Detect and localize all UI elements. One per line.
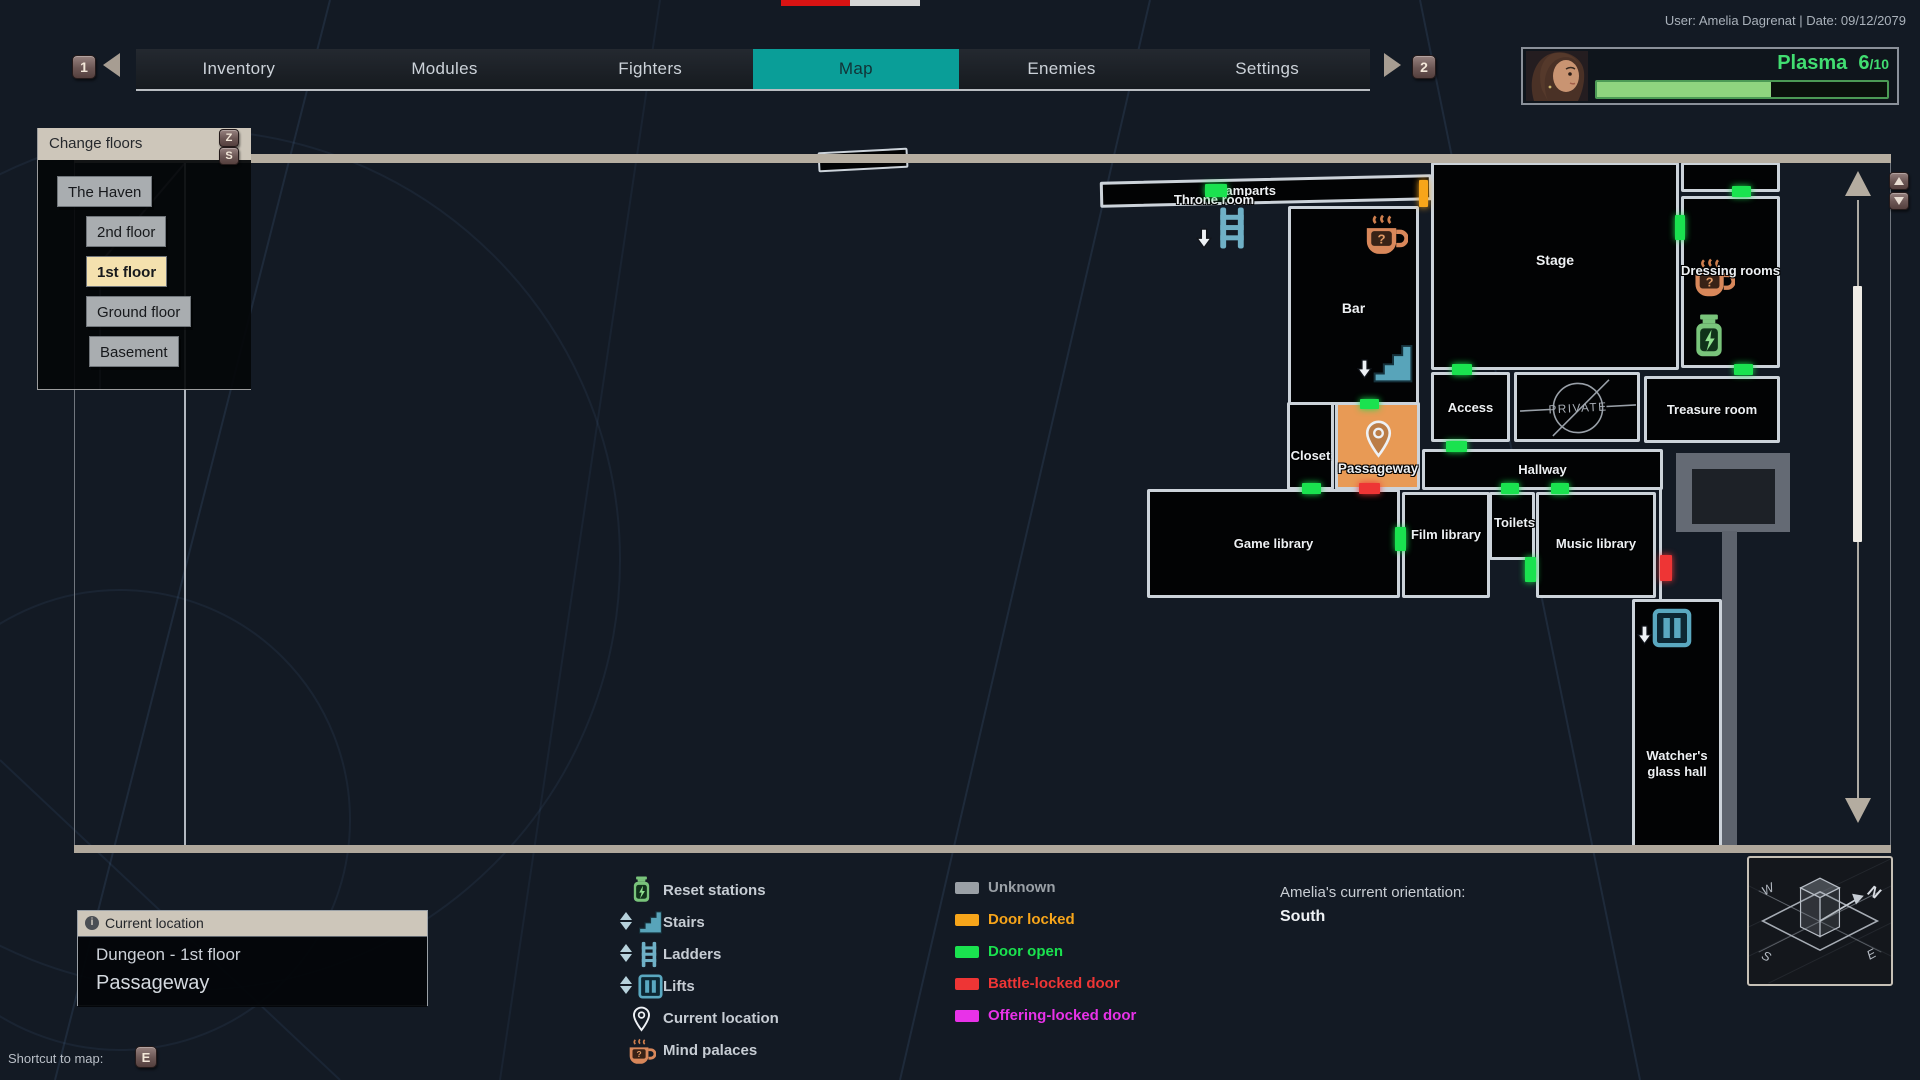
tab-inventory[interactable]: Inventory	[136, 49, 342, 89]
room-label-dressing-rooms: Dressing rooms	[1681, 263, 1780, 279]
current-location-pin-icon	[1364, 420, 1393, 458]
floor-2nd[interactable]: 2nd floor	[86, 216, 166, 247]
floor-down-key[interactable]: S	[219, 147, 239, 165]
floor-1st[interactable]: 1st floor	[86, 256, 167, 287]
plasma-bar	[1595, 80, 1889, 99]
orientation-value: South	[1280, 908, 1325, 926]
scroll-down-arrow[interactable]	[1845, 798, 1871, 823]
door-open	[1734, 364, 1753, 375]
current-location-title: Current location	[78, 911, 427, 936]
door-swatch-battle	[955, 978, 979, 990]
info-icon	[85, 916, 99, 930]
prev-tab-arrow-icon[interactable]	[103, 53, 120, 77]
stairs-icon	[1372, 342, 1414, 384]
room-label-hallway: Hallway	[1422, 462, 1663, 478]
door-battle	[1660, 555, 1672, 581]
door-open	[1551, 483, 1569, 494]
room-label-game-library: Game library	[1147, 536, 1400, 552]
room-label-bar: Bar	[1288, 300, 1419, 318]
reset-stations-icon	[630, 876, 653, 903]
room-label-music-library: Music library	[1536, 536, 1656, 552]
player-panel: Plasma 6/10	[1521, 47, 1899, 105]
tab-enemies[interactable]: Enemies	[959, 49, 1165, 89]
lift-icon	[638, 974, 663, 999]
top-progress-white	[850, 0, 920, 6]
ladder-icon	[1212, 206, 1252, 250]
plasma-fill	[1597, 82, 1771, 97]
door-open	[1501, 483, 1519, 494]
legend-reset-stations: Reset stations	[663, 876, 766, 906]
svg-text:?: ?	[1377, 232, 1385, 247]
door-open	[1732, 186, 1751, 197]
plasma-label: Plasma	[1777, 52, 1847, 74]
ladder-icon	[640, 941, 658, 968]
room-label-passageway: Passageway	[1318, 461, 1438, 478]
tab-label: Map	[839, 59, 873, 79]
room-label-treasure: Treasure room	[1644, 402, 1780, 418]
shortcut-key[interactable]: E	[135, 1046, 157, 1068]
tab-label: Modules	[411, 59, 477, 79]
legend-door-open: Door open	[988, 940, 1063, 964]
svg-text:?: ?	[636, 1049, 641, 1059]
tab-label: Inventory	[203, 59, 276, 79]
legend-battle-locked: Battle-locked door	[988, 972, 1120, 996]
private-stamp: PRIVATE	[1517, 376, 1640, 440]
door-swatch-locked	[955, 914, 979, 926]
floor-basement[interactable]: Basement	[89, 336, 179, 367]
legend-mind-palaces: Mind palaces	[663, 1036, 757, 1066]
door-swatch-unknown	[955, 882, 979, 894]
compass-w: W	[1759, 880, 1777, 898]
down-arrow-icon	[1357, 359, 1372, 379]
tab-label: Settings	[1235, 59, 1299, 79]
door-swatch-open	[955, 946, 979, 958]
scrollbar-thumb[interactable]	[1853, 286, 1862, 542]
legend-lifts: Lifts	[663, 972, 695, 1002]
lift-icon	[1652, 608, 1692, 648]
door-swatch-offering	[955, 1010, 979, 1022]
door-open	[1360, 399, 1379, 409]
door-open	[1302, 483, 1321, 494]
door-open	[1446, 441, 1467, 452]
room-column-top	[1681, 162, 1780, 192]
down-arrow-icon	[1196, 228, 1212, 249]
stairs-icon	[638, 910, 663, 934]
mind-palace-icon: ?	[624, 1038, 656, 1068]
scroll-down-key[interactable]	[1889, 192, 1909, 210]
next-tab-key[interactable]: 2	[1412, 55, 1436, 79]
plasma-value: 6	[1858, 52, 1869, 74]
legend-stairs: Stairs	[663, 908, 705, 938]
room-label-toilets: Toilets	[1494, 515, 1554, 531]
avatar	[1525, 51, 1589, 101]
tab-modules[interactable]: Modules	[342, 49, 548, 89]
room-label-stage: Stage	[1431, 252, 1679, 270]
door-open	[1395, 527, 1406, 551]
tab-bar: Inventory Modules Fighters Map Enemies S…	[136, 49, 1370, 91]
tab-map[interactable]: Map	[753, 49, 959, 89]
scroll-up-key[interactable]	[1889, 172, 1909, 190]
plasma-counter: Plasma 6/10	[1777, 52, 1889, 75]
structure-block-inner	[1692, 469, 1775, 524]
scroll-up-arrow[interactable]	[1845, 171, 1871, 196]
legend-offering-locked: Offering-locked door	[988, 1004, 1136, 1028]
door-open	[1452, 364, 1472, 375]
compass-e: E	[1864, 946, 1879, 963]
change-floors-panel: Change floors Z S The Haven 2nd floor 1s…	[37, 128, 251, 390]
current-location-room: Passageway	[96, 972, 209, 995]
up-down-arrows-icon	[620, 912, 632, 930]
orientation-label: Amelia's current orientation:	[1280, 884, 1465, 901]
door-locked	[1419, 180, 1428, 207]
door-open	[1525, 557, 1536, 582]
user-info: User: Amelia Dagrenat | Date: 09/12/2079	[1665, 13, 1906, 28]
door-open	[1675, 215, 1685, 240]
prev-tab-key[interactable]: 1	[72, 55, 96, 79]
private-stamp-text: PRIVATE	[1548, 399, 1608, 416]
current-location-panel: Current location Dungeon - 1st floor Pas…	[77, 910, 428, 1006]
room-label-access: Access	[1431, 400, 1510, 416]
floor-up-key[interactable]: Z	[219, 129, 239, 147]
map-screen: User: Amelia Dagrenat | Date: 09/12/2079…	[0, 0, 1920, 1080]
up-down-arrows-icon	[620, 944, 632, 962]
wall-segment	[1659, 489, 1662, 601]
current-location-pin-icon	[632, 1006, 651, 1032]
tab-fighters[interactable]: Fighters	[547, 49, 753, 89]
mind-palace-icon: ?	[1358, 212, 1408, 262]
down-arrow-icon	[1637, 625, 1652, 645]
compass-rose: W N S E	[1749, 858, 1891, 984]
floor-the-haven[interactable]: The Haven	[57, 176, 152, 207]
room-film-library	[1402, 492, 1490, 598]
compass-n: N	[1865, 883, 1884, 904]
room-label-film-library: Film library	[1402, 527, 1490, 543]
current-location-body: Dungeon - 1st floor Passageway	[78, 936, 427, 1007]
current-location-area: Dungeon - 1st floor	[96, 945, 241, 965]
legend-unknown: Unknown	[988, 876, 1056, 900]
next-tab-arrow-icon[interactable]	[1384, 53, 1401, 77]
shortcut-label: Shortcut to map:	[8, 1051, 103, 1066]
reset-station-icon	[1690, 310, 1728, 362]
legend-door-locked: Door locked	[988, 908, 1075, 932]
compass-panel: W N S E	[1747, 856, 1893, 986]
map-wall-top	[74, 154, 1891, 163]
structure-band	[1722, 531, 1737, 853]
tab-label: Fighters	[618, 59, 682, 79]
down-triangle-icon	[1894, 197, 1904, 205]
door-battle	[1359, 483, 1380, 494]
up-triangle-icon	[1894, 177, 1904, 185]
top-progress-red	[781, 0, 850, 6]
up-down-arrows-icon	[620, 976, 632, 994]
plasma-max: /10	[1870, 56, 1889, 72]
tab-label: Enemies	[1027, 59, 1095, 79]
map-wall-bottom	[74, 845, 1891, 853]
legend-current-location: Current location	[663, 1004, 779, 1034]
room-label-watchers: Watcher's glass hall	[1632, 748, 1722, 781]
floor-ground[interactable]: Ground floor	[86, 296, 191, 327]
tab-settings[interactable]: Settings	[1164, 49, 1370, 89]
legend-ladders: Ladders	[663, 940, 721, 970]
door-open	[1205, 184, 1227, 197]
